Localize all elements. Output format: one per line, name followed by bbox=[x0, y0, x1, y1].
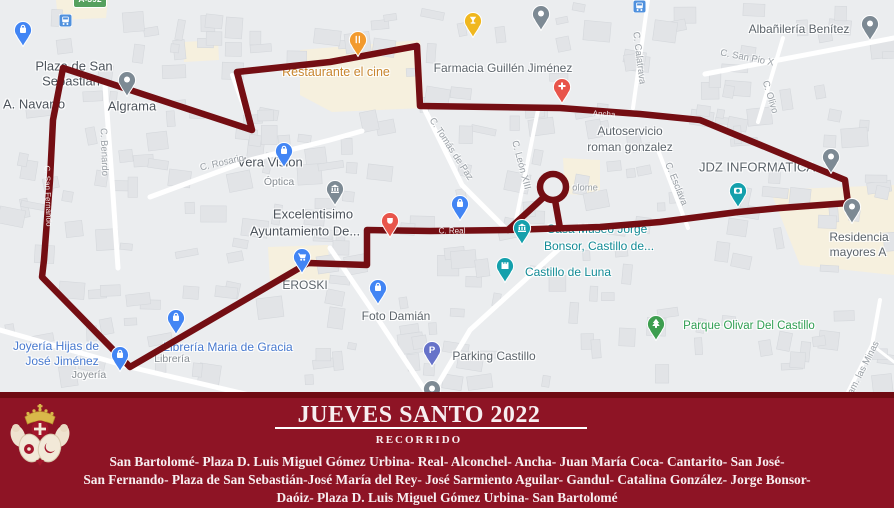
street-label-bartolome-partial: olome bbox=[572, 183, 598, 194]
street-label-leon-xiii: C. León XIII bbox=[509, 139, 533, 190]
shopping-pin-icon[interactable] bbox=[110, 345, 130, 372]
castle-pin-icon[interactable] bbox=[495, 256, 515, 283]
route-list-line-1: San Bartolomé- Plaza D. Luis Miguel Góme… bbox=[0, 453, 894, 471]
bus-stop-icon[interactable] bbox=[59, 14, 72, 27]
poi-label-joyeria-sub: Joyería bbox=[72, 369, 106, 381]
shopping-pin-icon[interactable] bbox=[368, 278, 388, 305]
bus-stop-icon[interactable] bbox=[633, 0, 646, 13]
street-label-tomas-de-paz: C. Tomás de Paz bbox=[427, 116, 476, 183]
poi-label-albanileria[interactable]: Albañilería Benítez bbox=[749, 22, 850, 36]
poi-label-residencia-2[interactable]: mayores A bbox=[830, 245, 887, 259]
goblet-pin-icon[interactable] bbox=[463, 11, 483, 38]
banner-title-underline bbox=[275, 427, 587, 429]
poi-label-casa-museo-2[interactable]: Bonsor, Castillo de... bbox=[544, 239, 654, 253]
svg-text:P: P bbox=[429, 345, 436, 356]
street-label-esclava: C. Esclava bbox=[662, 161, 689, 207]
poi-label-parking-castillo[interactable]: Parking Castillo bbox=[452, 349, 535, 363]
poi-label-castillo-de-luna[interactable]: Castillo de Luna bbox=[525, 265, 611, 279]
street-label-san-pio-x: C. San Pio X bbox=[719, 47, 774, 68]
street-label-olivo: C. Olivo bbox=[760, 79, 780, 115]
poi-label-parque-olivar[interactable]: Parque Olivar Del Castillo bbox=[683, 320, 815, 332]
area-label-navarro[interactable]: A. Navarro bbox=[3, 97, 65, 112]
poi-label-foto-damian[interactable]: Foto Damián bbox=[362, 309, 431, 323]
area-label-plaza-san-sebastian[interactable]: Plaza de San bbox=[35, 59, 112, 74]
shopping-pin-icon[interactable] bbox=[274, 141, 294, 168]
poi-label-algrama[interactable]: Algrama bbox=[108, 99, 156, 114]
street-label-calatrava: C. Calatrava bbox=[630, 31, 647, 85]
generic-pin-icon[interactable] bbox=[860, 14, 880, 41]
area-label-plaza-san-sebastian-2[interactable]: Sebastián bbox=[42, 74, 100, 89]
shopping-pin-icon[interactable] bbox=[450, 194, 470, 221]
generic-pin-icon[interactable] bbox=[821, 147, 841, 174]
restaurant-pin-icon[interactable] bbox=[348, 30, 368, 57]
screenshot-stage: Plaza de San Sebastián A. Navarro Algram… bbox=[0, 0, 894, 508]
poi-label-jdz-informatica[interactable]: JDZ INFORMATICA bbox=[699, 160, 815, 175]
museum-pin-icon[interactable] bbox=[512, 218, 532, 245]
bakery-pin-icon[interactable] bbox=[380, 211, 400, 238]
tree-pin-icon[interactable] bbox=[646, 314, 666, 341]
museum-pin-icon[interactable] bbox=[325, 179, 345, 206]
shopping-pin-icon[interactable] bbox=[13, 20, 33, 47]
banner: JUEVES SANTO 2022 RECORRIDO San Bartolom… bbox=[0, 392, 894, 508]
poi-label-vera-vision-sub: Óptica bbox=[264, 176, 294, 188]
shopping-pin-icon[interactable] bbox=[166, 308, 186, 335]
cart-pin-icon[interactable] bbox=[292, 247, 312, 274]
poi-label-farmacia[interactable]: Farmacia Guillén Jiménez bbox=[434, 61, 573, 75]
camera-pin-icon[interactable] bbox=[728, 181, 748, 208]
route-start-loop bbox=[540, 174, 566, 200]
route-list-line-3: Daóiz- Plaza D. Luis Miguel Gómez Urbina… bbox=[0, 489, 894, 507]
pharmacy-pin-icon[interactable] bbox=[552, 77, 572, 104]
generic-pin-icon[interactable] bbox=[117, 70, 137, 97]
banner-title: JUEVES SANTO 2022 bbox=[0, 402, 852, 429]
poi-label-autoservicio-2[interactable]: roman gonzalez bbox=[587, 140, 672, 154]
parking-pin-icon[interactable]: P bbox=[422, 340, 442, 367]
street-label-rosario: C. Rosario bbox=[199, 153, 245, 174]
street-label-benardo: C. Benardo bbox=[98, 128, 111, 176]
map-canvas[interactable]: Plaza de San Sebastián A. Navarro Algram… bbox=[0, 0, 894, 398]
generic-pin-icon[interactable] bbox=[531, 4, 551, 31]
poi-label-eroski[interactable]: EROSKI bbox=[282, 278, 327, 292]
poi-label-autoservicio[interactable]: Autoservicio bbox=[597, 124, 662, 138]
poi-label-libreria-sub: Librería bbox=[154, 353, 190, 365]
poi-label-restaurante-el-cine[interactable]: Restaurante el cine bbox=[282, 65, 390, 79]
poi-label-joyeria-2[interactable]: José Jiménez bbox=[25, 354, 98, 368]
poi-label-ayuntamiento[interactable]: Excelentisimo bbox=[273, 207, 353, 222]
poi-label-joyeria[interactable]: Joyería Hijas de bbox=[13, 339, 99, 353]
road-badge: A-392 bbox=[73, 0, 107, 8]
street-label-ancha: Ancha bbox=[592, 109, 615, 120]
generic-pin-icon[interactable] bbox=[842, 197, 862, 224]
route-list-line-2: San Fernando- Plaza de San Sebastián-Jos… bbox=[0, 471, 894, 489]
street-label-real: C. Real bbox=[439, 227, 466, 236]
poi-label-libreria[interactable]: Librería Maria de Gracia bbox=[163, 340, 292, 354]
banner-subtitle: RECORRIDO bbox=[0, 434, 852, 446]
street-label-san-fernando: C. San Fernando bbox=[42, 165, 53, 226]
poi-label-residencia[interactable]: Residencia bbox=[829, 230, 888, 244]
poi-label-casa-museo[interactable]: Casa Museo Jorge bbox=[547, 222, 648, 236]
poi-label-ayuntamiento-2[interactable]: Ayuntamiento De... bbox=[250, 224, 360, 239]
banner-route-list: San Bartolomé- Plaza D. Luis Miguel Góme… bbox=[0, 453, 894, 507]
